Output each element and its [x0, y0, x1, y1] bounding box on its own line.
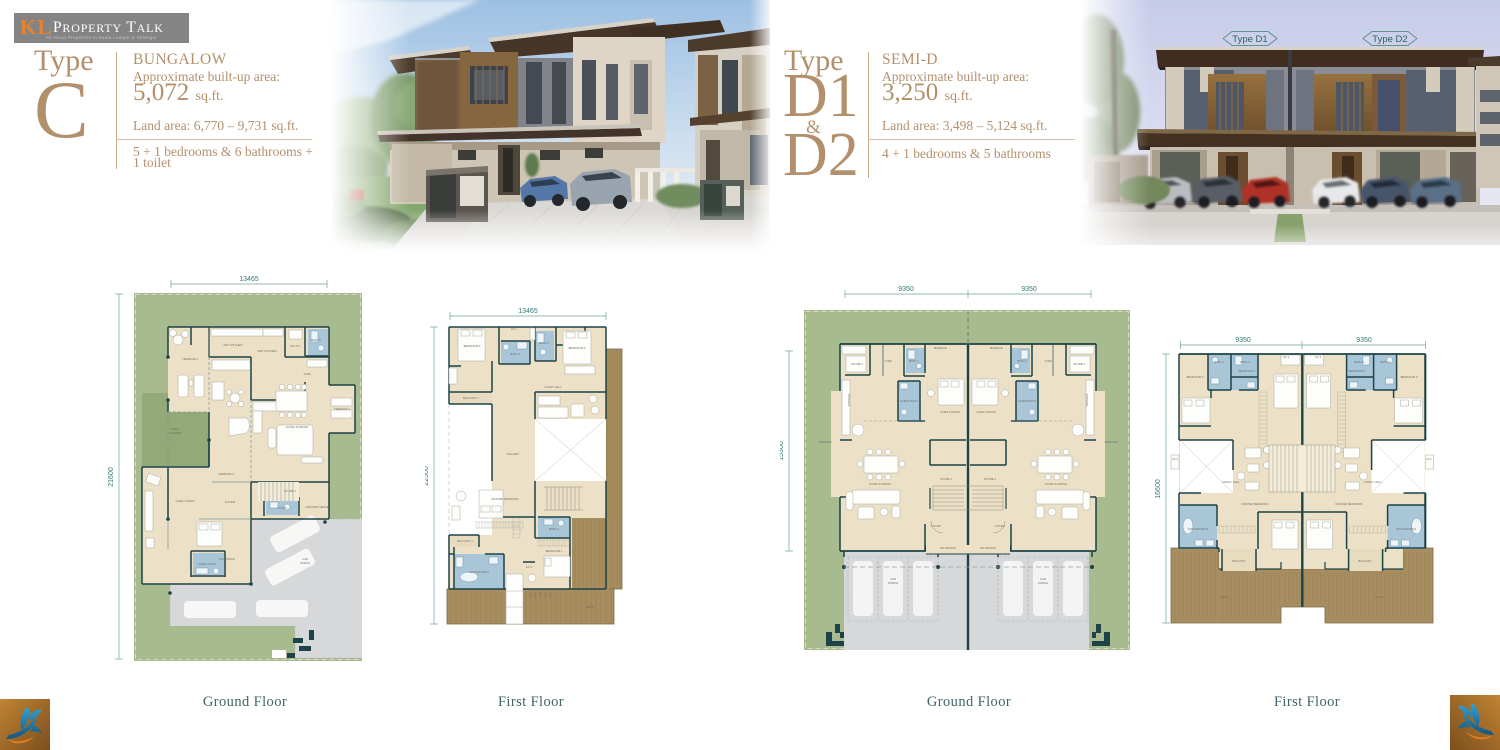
svg-text:AC 3: AC 3	[1315, 355, 1322, 359]
svg-text:BATH 2: BATH 2	[909, 359, 919, 363]
svg-text:BALCONY 1: BALCONY 1	[457, 539, 473, 543]
svg-text:BEDROOM 3: BEDROOM 3	[1187, 375, 1204, 379]
svg-text:9350: 9350	[1356, 337, 1372, 344]
svg-text:STORE 2: STORE 2	[851, 362, 863, 366]
svg-text:BEDROOM 2: BEDROOM 2	[464, 344, 481, 348]
svg-text:GUEST BATH: GUEST BATH	[1018, 399, 1036, 403]
svg-text:TERRACE: TERRACE	[1104, 440, 1117, 444]
svg-text:BATH 3: BATH 3	[1214, 360, 1224, 364]
svg-text:MASTER BATH: MASTER BATH	[1396, 527, 1416, 531]
svg-text:YARD: YARD	[303, 372, 311, 376]
svg-text:MASTER BEDROOM: MASTER BEDROOM	[492, 497, 520, 501]
svg-text:Type D2: Type D2	[1372, 34, 1407, 45]
svg-text:BATH 2: BATH 2	[1017, 359, 1027, 363]
svg-text:LIVING & DINING: LIVING & DINING	[869, 482, 891, 486]
svg-text:KITCHEN: KITCHEN	[1085, 394, 1089, 406]
svg-text:FAMILY HALL: FAMILY HALL	[1364, 480, 1382, 484]
svg-text:15300: 15300	[780, 441, 785, 461]
svg-text:TERRACE 3: TERRACE 3	[218, 472, 234, 476]
svg-text:FOYER: FOYER	[931, 524, 941, 528]
svg-text:13465: 13465	[239, 276, 259, 283]
svg-text:TERRACE 2: TERRACE 2	[182, 357, 198, 361]
svg-text:GARDEN: GARDEN	[169, 431, 181, 435]
svg-text:LIVING & DINING: LIVING & DINING	[1045, 482, 1067, 486]
svg-text:TERRACE: TERRACE	[989, 346, 1002, 350]
svg-text:GUEST BATH: GUEST BATH	[900, 399, 918, 403]
svg-text:22500: 22500	[425, 466, 430, 486]
svg-text:GALLERY: GALLERY	[507, 452, 520, 456]
svg-text:ENTRANCE: ENTRANCE	[980, 546, 996, 550]
svg-text:LIVING & DINING: LIVING & DINING	[286, 425, 308, 429]
svg-text:YARD: YARD	[884, 359, 892, 363]
svg-text:KITCHEN: KITCHEN	[847, 394, 851, 406]
svg-text:DECK: DECK	[586, 605, 594, 609]
svg-text:STORE 1: STORE 1	[940, 477, 952, 481]
svg-text:BATH 4: BATH 4	[1354, 360, 1364, 364]
svg-text:9350: 9350	[898, 286, 914, 293]
svg-text:BATH 3: BATH 3	[1380, 360, 1390, 364]
svg-text:MASTER BATH: MASTER BATH	[1188, 527, 1208, 531]
svg-text:YARD: YARD	[1044, 359, 1052, 363]
svg-text:13465: 13465	[518, 308, 538, 315]
svg-text:BEDROOM 4: BEDROOM 4	[1349, 369, 1366, 373]
svg-text:GUEST ROOM: GUEST ROOM	[940, 410, 960, 414]
svg-text:FOYER: FOYER	[225, 500, 235, 504]
svg-text:AIRCOND LEDGE: AIRCOND LEDGE	[305, 505, 328, 509]
svg-text:Type D1: Type D1	[1232, 34, 1267, 45]
svg-text:AC 2: AC 2	[526, 565, 533, 569]
svg-text:UTILITY: UTILITY	[290, 344, 301, 348]
svg-text:WET KITCHEN: WET KITCHEN	[257, 349, 276, 353]
svg-text:GUEST ROOM: GUEST ROOM	[976, 410, 996, 414]
svg-text:9350: 9350	[1021, 286, 1037, 293]
svg-text:STORE 1: STORE 1	[284, 489, 296, 493]
svg-text:16600: 16600	[1155, 479, 1162, 499]
svg-text:BATH 1: BATH 1	[549, 527, 559, 531]
svg-text:AC 3: AC 3	[1283, 355, 1290, 359]
svg-text:BALCONY: BALCONY	[1358, 559, 1372, 563]
svg-text:ENTRANCE: ENTRANCE	[940, 546, 956, 550]
svg-text:BEDROOM 4: BEDROOM 4	[1239, 369, 1256, 373]
svg-text:BALCONY 2: BALCONY 2	[463, 396, 479, 400]
svg-text:MASTER BATH: MASTER BATH	[469, 570, 489, 574]
svg-text:FAMILY HALL: FAMILY HALL	[1222, 480, 1240, 484]
svg-text:AC 2: AC 2	[1426, 458, 1432, 461]
svg-text:AC 1: AC 1	[511, 327, 518, 331]
svg-text:GUEST ROOM: GUEST ROOM	[175, 499, 195, 503]
svg-text:TERRACE: TERRACE	[933, 346, 946, 350]
svg-text:BEDROOM 3: BEDROOM 3	[569, 346, 586, 350]
svg-text:DRY KITCHEN: DRY KITCHEN	[224, 343, 243, 347]
svg-text:TOILET: TOILET	[277, 506, 287, 510]
svg-text:GUEST BATH: GUEST BATH	[198, 562, 216, 566]
svg-text:FOYER: FOYER	[995, 524, 1005, 528]
svg-text:BALCONY: BALCONY	[1232, 559, 1246, 563]
svg-text:PORCH: PORCH	[300, 561, 310, 565]
svg-text:PORCH: PORCH	[1038, 581, 1048, 585]
svg-text:DECK: DECK	[1221, 595, 1229, 599]
svg-text:MASTER BEDROOM: MASTER BEDROOM	[1242, 502, 1270, 506]
svg-text:BATH 2: BATH 2	[539, 341, 549, 345]
svg-text:ENTRANCE: ENTRANCE	[219, 557, 235, 561]
svg-text:STORE 2: STORE 2	[1073, 362, 1085, 366]
svg-text:AC 2: AC 2	[1172, 458, 1178, 461]
svg-text:STORE 1: STORE 1	[984, 477, 996, 481]
svg-text:BATH 4: BATH 4	[1240, 360, 1250, 364]
svg-text:STUDY HALL: STUDY HALL	[544, 385, 562, 389]
svg-text:PORCH: PORCH	[888, 581, 898, 585]
svg-text:MASTER BEDROOM: MASTER BEDROOM	[1336, 502, 1364, 506]
svg-text:BATH 5: BATH 5	[311, 338, 321, 342]
svg-text:9350: 9350	[1235, 337, 1251, 344]
svg-text:TERRACE: TERRACE	[818, 440, 831, 444]
svg-text:DECK: DECK	[1375, 595, 1383, 599]
svg-text:BEDROOM 3: BEDROOM 3	[1401, 375, 1418, 379]
svg-text:21600: 21600	[108, 467, 115, 487]
svg-text:BATH 3: BATH 3	[510, 352, 520, 356]
svg-text:TERRACE 1: TERRACE 1	[334, 407, 350, 411]
svg-text:BEDROOM 1: BEDROOM 1	[546, 549, 563, 553]
